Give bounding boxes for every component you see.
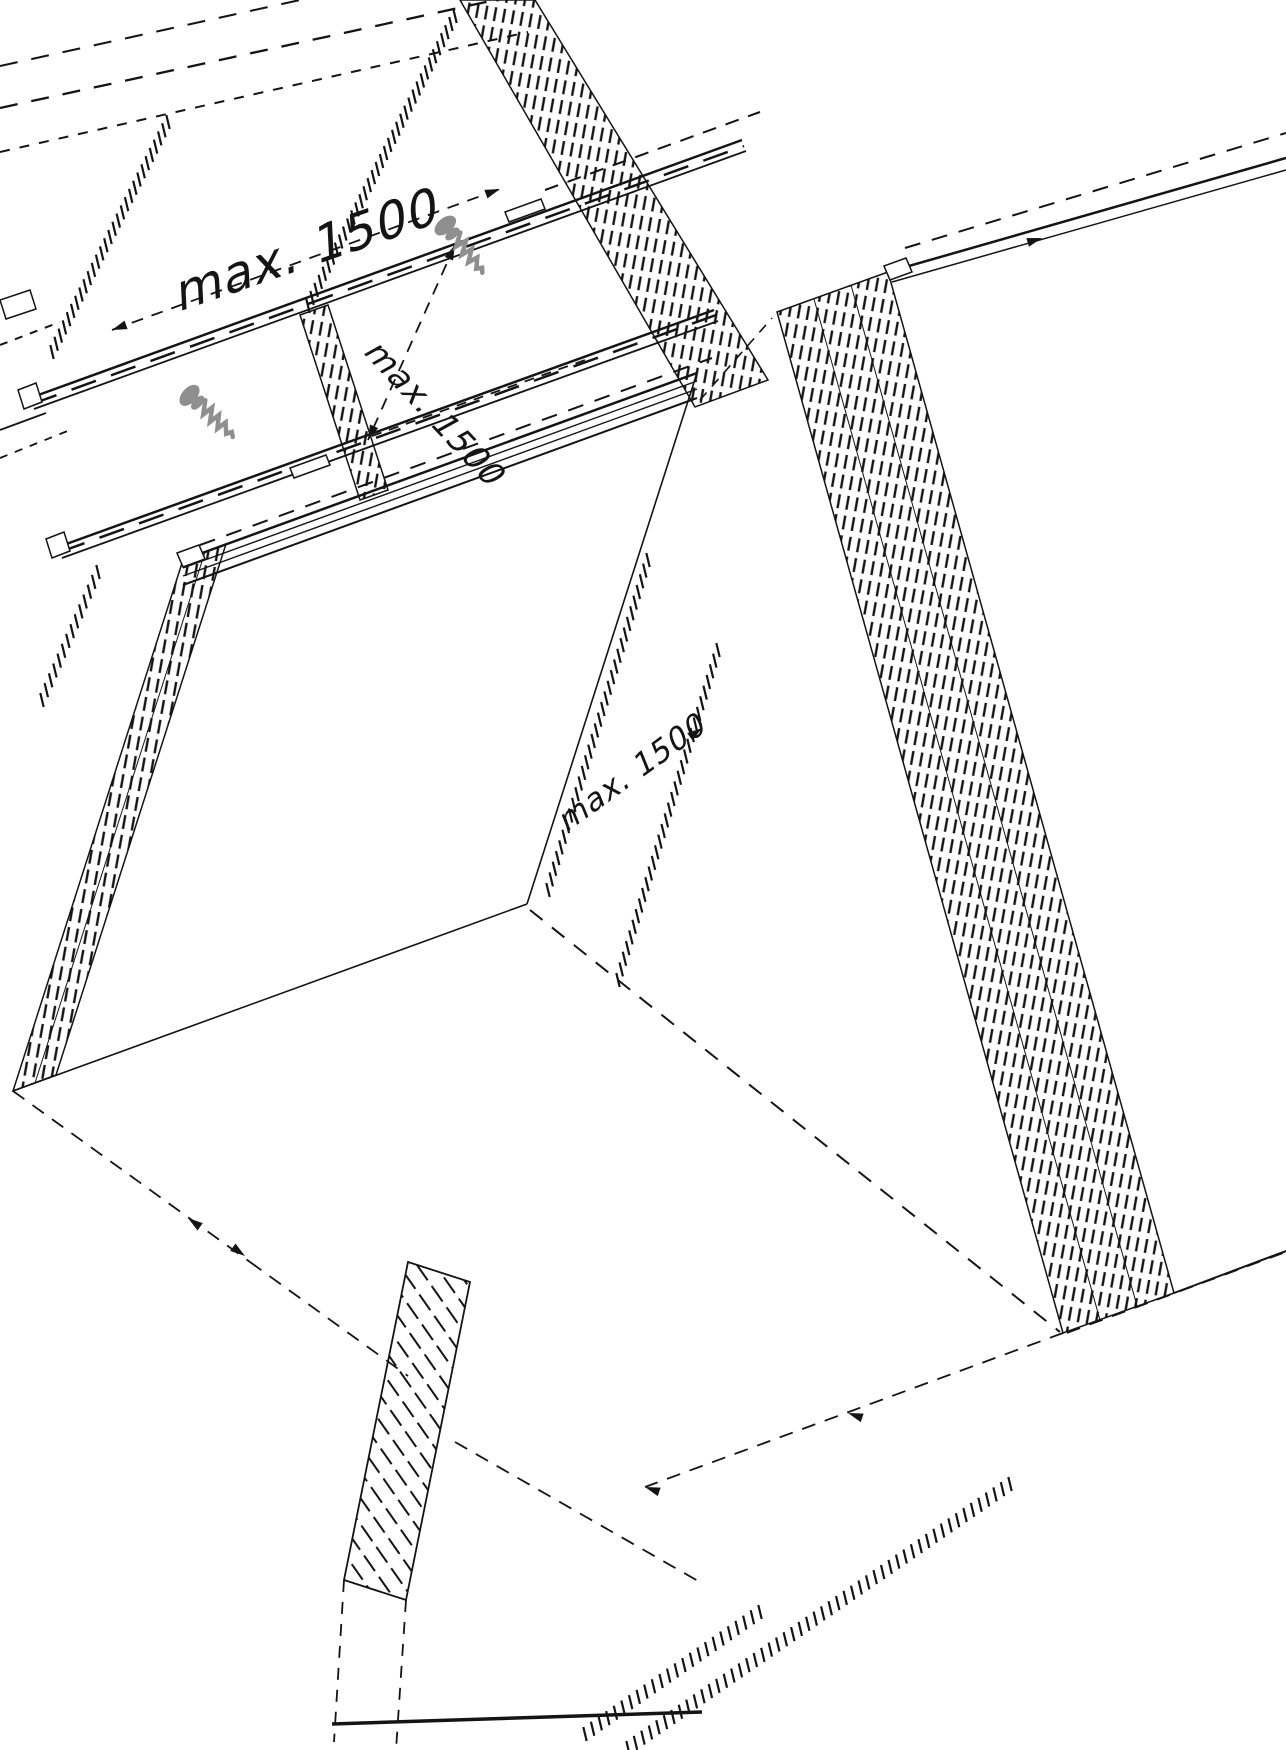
dimension-label-module-field: max. 1500 <box>555 704 710 841</box>
screw-icon <box>176 382 242 445</box>
bottom-details <box>332 1262 705 1750</box>
assembly-drawing: max. 1500 max. 1500 max. 1500 <box>0 0 1286 1750</box>
isometric-line-drawing: max. 1500 max. 1500 max. 1500 <box>0 0 1286 1750</box>
mounting-rails <box>18 112 760 558</box>
